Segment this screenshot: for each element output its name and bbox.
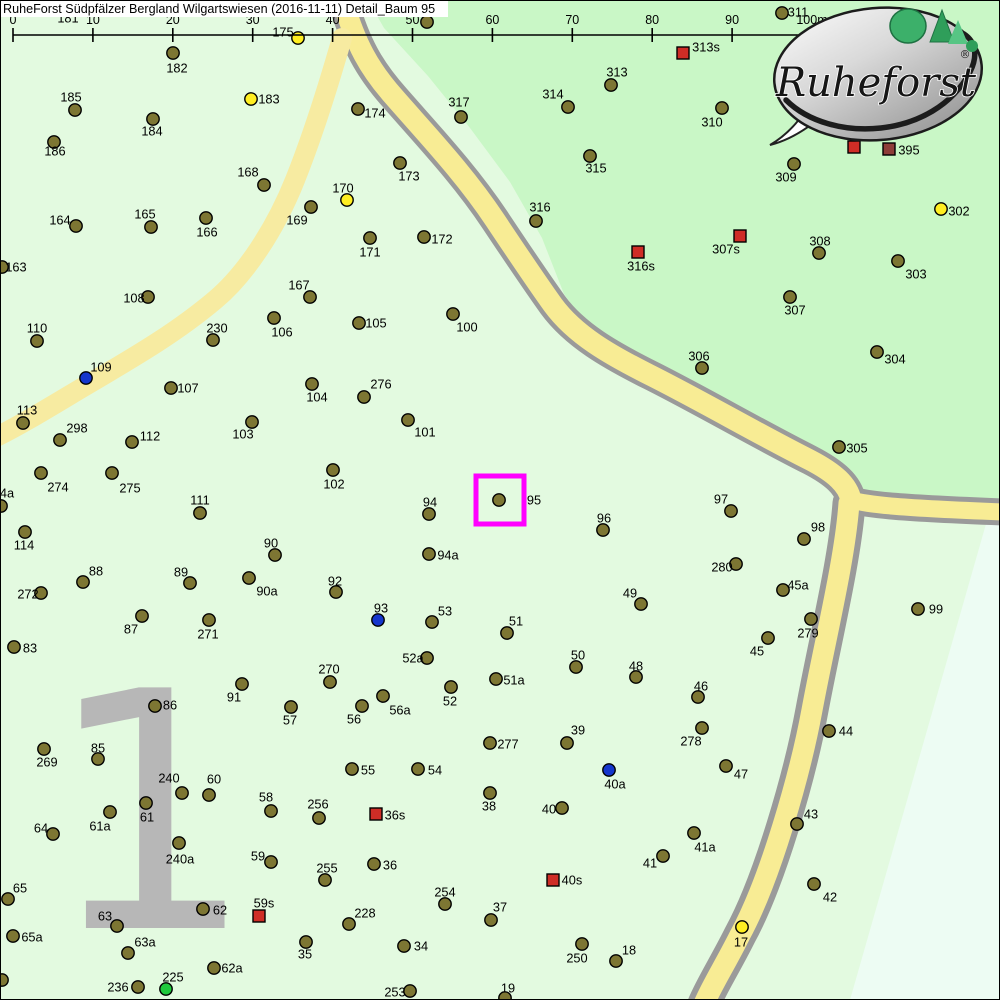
- tree-marker-36[interactable]: 36: [368, 858, 397, 873]
- tree-marker-40[interactable]: 40: [542, 802, 568, 817]
- marker-dot[interactable]: [324, 676, 336, 688]
- marker-dot[interactable]: [455, 111, 467, 123]
- marker-dot[interactable]: [610, 955, 622, 967]
- marker-dot[interactable]: [447, 308, 459, 320]
- marker-label: 61a: [89, 819, 111, 834]
- marker-dot[interactable]: [823, 725, 835, 737]
- tree-marker-83[interactable]: 83: [8, 641, 37, 656]
- marker-label: 86: [163, 698, 177, 713]
- tree-marker-65a[interactable]: 65a: [7, 930, 44, 945]
- map-canvas[interactable]: 1 181182185183184186168311318175313s3133…: [0, 0, 1000, 1000]
- marker-label: 276: [370, 377, 391, 392]
- marker-label: 63: [98, 909, 112, 924]
- tree-marker-86[interactable]: 86: [149, 698, 177, 713]
- marker-label: 108: [123, 291, 144, 306]
- marker-label: 165: [134, 207, 155, 222]
- marker-label: 56a: [389, 703, 411, 718]
- marker-label: 280: [711, 560, 732, 575]
- marker-label: 104: [306, 390, 327, 405]
- marker-dot[interactable]: [736, 921, 748, 933]
- marker-label: 51a: [503, 673, 525, 688]
- marker-label: 61: [140, 810, 154, 825]
- marker-label: 40s: [562, 873, 583, 888]
- marker-dot[interactable]: [784, 291, 796, 303]
- marker-label: 101: [414, 425, 435, 440]
- marker-label: 111: [190, 493, 209, 508]
- tree-marker-54[interactable]: 54: [412, 763, 442, 778]
- marker-dot[interactable]: [720, 760, 732, 772]
- marker-dot[interactable]: [657, 850, 669, 862]
- marker-label: 85: [91, 741, 105, 756]
- marker-dot[interactable]: [353, 317, 365, 329]
- marker-dot[interactable]: [688, 827, 700, 839]
- marker-dot[interactable]: [253, 910, 265, 922]
- marker-dot[interactable]: [38, 743, 50, 755]
- marker-dot[interactable]: [305, 201, 317, 213]
- marker-label: 90: [264, 536, 278, 551]
- marker-label: 175: [272, 25, 293, 40]
- marker-label: 313: [606, 65, 627, 80]
- marker-dot[interactable]: [167, 47, 179, 59]
- marker-label: 106: [271, 325, 292, 340]
- marker-dot[interactable]: [423, 548, 435, 560]
- tree-marker-107[interactable]: 107: [165, 381, 199, 396]
- marker-dot[interactable]: [106, 467, 118, 479]
- marker-label: 17: [734, 935, 748, 950]
- tree-marker-94[interactable]: 94: [423, 495, 437, 521]
- marker-label: 93: [374, 601, 388, 616]
- marker-dot[interactable]: [418, 231, 430, 243]
- marker-label: 89: [174, 565, 188, 580]
- marker-dot[interactable]: [203, 614, 215, 626]
- tree-marker-35[interactable]: 35: [298, 936, 312, 962]
- marker-dot[interactable]: [306, 378, 318, 390]
- marker-dot[interactable]: [805, 613, 817, 625]
- marker-dot[interactable]: [111, 920, 123, 932]
- marker-label: 317: [448, 95, 469, 110]
- marker-label: 34: [414, 939, 428, 954]
- marker-dot[interactable]: [319, 874, 331, 886]
- tree-marker-277[interactable]: 277: [484, 737, 519, 752]
- marker-label: 298: [66, 421, 87, 436]
- marker-label: 302: [948, 204, 969, 219]
- marker-label: 314: [542, 87, 563, 102]
- marker-dot[interactable]: [197, 903, 209, 915]
- marker-label: 278: [680, 734, 701, 749]
- marker-label: 38: [482, 799, 496, 814]
- marker-dot[interactable]: [122, 947, 134, 959]
- marker-label: 65a: [21, 930, 43, 945]
- marker-dot[interactable]: [356, 700, 368, 712]
- marker-label: 254: [434, 885, 455, 900]
- tree-marker-305[interactable]: 305: [833, 441, 868, 456]
- marker-dot[interactable]: [734, 230, 746, 242]
- tree-marker-17[interactable]: 17: [734, 921, 748, 950]
- marker-dot[interactable]: [576, 938, 588, 950]
- marker-dot[interactable]: [725, 505, 737, 517]
- marker-dot[interactable]: [341, 194, 353, 206]
- marker-label: 313s: [692, 40, 720, 55]
- marker-dot[interactable]: [7, 930, 19, 942]
- marker-label: 316: [529, 200, 550, 215]
- marker-label: 60: [207, 772, 221, 787]
- marker-dot[interactable]: [398, 940, 410, 952]
- grave-marker-unlabeled[interactable]: [848, 141, 860, 153]
- logo-tree-icon: [890, 9, 926, 43]
- page-title: RuheForst Südpfälzer Bergland Wilgartswi…: [3, 2, 435, 16]
- marker-label: 167: [288, 278, 309, 293]
- marker-label: 170: [332, 181, 353, 196]
- marker-label: 83: [23, 641, 37, 656]
- marker-label: 90a: [256, 584, 278, 599]
- marker-label: 45: [750, 644, 764, 659]
- marker-label: 40: [542, 802, 556, 817]
- marker-label: 56: [347, 712, 361, 727]
- marker-label: 185: [60, 90, 81, 105]
- marker-label: 256: [307, 797, 328, 812]
- tree-marker-92[interactable]: 92: [328, 574, 342, 599]
- marker-dot[interactable]: [35, 467, 47, 479]
- marker-label: 225: [162, 970, 183, 985]
- marker-label: 41: [643, 856, 657, 871]
- marker-dot[interactable]: [484, 787, 496, 799]
- marker-label: 279: [797, 626, 818, 641]
- marker-dot[interactable]: [377, 690, 389, 702]
- tree-marker-236[interactable]: 236: [107, 980, 144, 995]
- marker-label: 114: [14, 538, 34, 553]
- marker-dot[interactable]: [570, 661, 582, 673]
- marker-label: 308: [809, 234, 830, 249]
- marker-label: 250: [566, 951, 587, 966]
- marker-dot[interactable]: [208, 962, 220, 974]
- marker-dot[interactable]: [935, 203, 947, 215]
- marker-label: 43: [804, 807, 818, 822]
- map-viewer: 1 181182185183184186168311318175313s3133…: [0, 0, 1000, 1000]
- marker-label: 166: [196, 225, 217, 240]
- tree-marker-51a[interactable]: 51a: [490, 673, 526, 688]
- marker-dot[interactable]: [19, 526, 31, 538]
- marker-dot[interactable]: [346, 763, 358, 775]
- marker-label: 253: [384, 985, 405, 1000]
- marker-label: 35: [298, 947, 312, 962]
- marker-dot[interactable]: [605, 79, 617, 91]
- marker-label: 44: [839, 724, 853, 739]
- marker-dot[interactable]: [490, 673, 502, 685]
- tree-marker-57[interactable]: 57: [283, 701, 297, 728]
- marker-label: 395: [898, 143, 919, 158]
- marker-label: 112: [140, 429, 160, 444]
- marker-label: 102: [323, 477, 344, 492]
- marker-dot[interactable]: [421, 16, 433, 28]
- tree-marker-108[interactable]: 108: [123, 291, 154, 306]
- marker-dot[interactable]: [883, 143, 895, 155]
- tree-marker-272[interactable]: 272: [17, 587, 47, 602]
- marker-dot[interactable]: [696, 362, 708, 374]
- marker-dot[interactable]: [104, 806, 116, 818]
- tree-marker-94a[interactable]: 94a: [423, 548, 460, 563]
- marker-label: 45a: [787, 578, 809, 593]
- tree-marker-61[interactable]: 61: [140, 797, 154, 825]
- marker-dot[interactable]: [426, 616, 438, 628]
- marker-label: 50: [571, 648, 585, 663]
- marker-label: 110: [27, 321, 47, 336]
- tree-marker-44[interactable]: 44: [823, 724, 853, 739]
- marker-label: 87: [124, 622, 138, 637]
- marker-label: 255: [316, 861, 337, 876]
- marker-dot[interactable]: [268, 312, 280, 324]
- marker-label: 109: [90, 360, 111, 375]
- marker-label: 47: [734, 767, 748, 782]
- marker-dot[interactable]: [561, 737, 573, 749]
- marker-label: 240: [158, 771, 179, 786]
- marker-dot[interactable]: [327, 464, 339, 476]
- marker-label: 52a: [402, 651, 424, 666]
- marker-label: 59: [251, 849, 265, 864]
- marker-label: 91: [227, 690, 241, 705]
- marker-dot[interactable]: [176, 787, 188, 799]
- marker-dot[interactable]: [484, 737, 496, 749]
- marker-label: 94a: [437, 548, 459, 563]
- marker-label: 305: [846, 441, 867, 456]
- marker-dot[interactable]: [132, 981, 144, 993]
- tree-marker-163[interactable]: 163: [0, 260, 27, 275]
- marker-dot[interactable]: [501, 627, 513, 639]
- marker-label: 42: [823, 890, 837, 905]
- grave-marker-40s[interactable]: 40s: [547, 873, 582, 888]
- marker-dot[interactable]: [17, 417, 29, 429]
- marker-label: 172: [431, 232, 452, 247]
- marker-dot[interactable]: [8, 641, 20, 653]
- marker-label: 105: [365, 316, 386, 331]
- marker-label: 164: [49, 213, 70, 228]
- marker-label: 99: [929, 602, 943, 617]
- marker-dot[interactable]: [372, 614, 384, 626]
- marker-dot[interactable]: [423, 508, 435, 520]
- marker-dot[interactable]: [562, 101, 574, 113]
- marker-dot[interactable]: [696, 722, 708, 734]
- marker-dot[interactable]: [173, 837, 185, 849]
- marker-dot[interactable]: [149, 700, 161, 712]
- marker-dot[interactable]: [140, 797, 152, 809]
- marker-label: 107: [177, 381, 198, 396]
- tree-marker-52[interactable]: 52: [443, 681, 457, 709]
- marker-label: 303: [905, 267, 926, 282]
- scale-tick-label: 60: [485, 13, 499, 27]
- marker-dot[interactable]: [368, 858, 380, 870]
- marker-dot[interactable]: [445, 681, 457, 693]
- marker-dot[interactable]: [808, 878, 820, 890]
- marker-dot[interactable]: [912, 603, 924, 615]
- marker-label: 41a: [694, 840, 716, 855]
- marker-label: 48: [629, 659, 643, 674]
- marker-dot[interactable]: [47, 828, 59, 840]
- marker-dot[interactable]: [762, 632, 774, 644]
- marker-label: 19: [501, 981, 515, 996]
- marker-dot[interactable]: [236, 678, 248, 690]
- marker-dot[interactable]: [370, 808, 382, 820]
- marker-label: 92: [328, 574, 342, 589]
- tree-marker-38[interactable]: 38: [482, 787, 496, 814]
- marker-dot[interactable]: [358, 391, 370, 403]
- marker-dot[interactable]: [145, 221, 157, 233]
- marker-label: 315: [585, 161, 606, 176]
- marker-dot[interactable]: [70, 220, 82, 232]
- marker-label: 64: [34, 821, 48, 836]
- marker-dot[interactable]: [0, 974, 8, 986]
- marker-dot[interactable]: [547, 874, 559, 886]
- marker-dot[interactable]: [265, 805, 277, 817]
- marker-dot[interactable]: [833, 441, 845, 453]
- marker-dot[interactable]: [203, 789, 215, 801]
- marker-label: 228: [354, 906, 375, 921]
- marker-label: 113: [17, 403, 37, 418]
- marker-label: 169: [286, 213, 307, 228]
- tree-marker-unlabeled[interactable]: [0, 974, 8, 986]
- tree-marker-52a[interactable]: 52a: [402, 651, 433, 666]
- tree-marker-34[interactable]: 34: [398, 939, 428, 954]
- marker-dot[interactable]: [493, 494, 505, 506]
- marker-dot[interactable]: [243, 572, 255, 584]
- marker-label: 310: [701, 115, 722, 130]
- marker-dot[interactable]: [265, 856, 277, 868]
- marker-label: 103: [232, 427, 253, 442]
- marker-dot[interactable]: [245, 93, 257, 105]
- marker-dot[interactable]: [530, 215, 542, 227]
- grave-marker-36s[interactable]: 36s: [370, 808, 405, 823]
- marker-dot[interactable]: [69, 104, 81, 116]
- marker-label: 95: [527, 493, 541, 508]
- marker-label: 49: [623, 586, 637, 601]
- marker-dot[interactable]: [632, 246, 644, 258]
- tree-marker-183[interactable]: 183: [245, 92, 280, 107]
- marker-label: 274: [47, 480, 68, 495]
- marker-dot[interactable]: [304, 291, 316, 303]
- marker-dot[interactable]: [165, 382, 177, 394]
- marker-dot[interactable]: [313, 812, 325, 824]
- marker-dot[interactable]: [716, 102, 728, 114]
- marker-label: 58: [259, 790, 273, 805]
- marker-label: 94: [423, 495, 437, 510]
- marker-label: 53: [438, 604, 452, 619]
- marker-dot[interactable]: [352, 103, 364, 115]
- marker-label: 52: [443, 694, 457, 709]
- marker-label: 65: [13, 881, 27, 896]
- marker-label: 173: [398, 169, 419, 184]
- marker-label: 51: [509, 614, 523, 629]
- marker-dot[interactable]: [412, 763, 424, 775]
- marker-label: 36: [383, 858, 397, 873]
- tree-marker-48[interactable]: 48: [629, 659, 643, 684]
- scale-tick-label: 80: [645, 13, 659, 27]
- marker-label: 36s: [385, 808, 406, 823]
- marker-label: 307s: [712, 242, 740, 257]
- marker-label: 183: [258, 92, 279, 107]
- marker-dot[interactable]: [194, 507, 206, 519]
- marker-label: 54: [428, 763, 442, 778]
- marker-label: 272: [17, 587, 38, 602]
- marker-dot[interactable]: [285, 701, 297, 713]
- marker-label: 18: [622, 943, 636, 958]
- marker-label: 230: [206, 321, 227, 336]
- tree-marker-62a[interactable]: 62a: [208, 961, 244, 976]
- marker-label: 97: [714, 492, 728, 507]
- tree-marker-96[interactable]: 96: [597, 511, 611, 537]
- marker-label: 304: [884, 352, 905, 367]
- marker-label: 316s: [627, 259, 655, 274]
- marker-label: 40a: [604, 777, 626, 792]
- marker-label: 184: [141, 124, 162, 139]
- marker-dot[interactable]: [394, 157, 406, 169]
- tree-marker-55[interactable]: 55: [346, 763, 375, 778]
- marker-dot[interactable]: [136, 610, 148, 622]
- marker-dot[interactable]: [603, 764, 615, 776]
- marker-label: 271: [197, 627, 218, 642]
- marker-dot[interactable]: [871, 346, 883, 358]
- marker-label: 307: [784, 303, 805, 318]
- grave-marker-395[interactable]: 395: [883, 143, 920, 158]
- marker-dot[interactable]: [364, 232, 376, 244]
- marker-dot[interactable]: [126, 436, 138, 448]
- marker-dot[interactable]: [556, 802, 568, 814]
- marker-label: 171: [359, 245, 380, 260]
- marker-dot[interactable]: [258, 179, 270, 191]
- marker-label: 88: [89, 564, 103, 579]
- tree-marker-253[interactable]: 253: [384, 985, 416, 1000]
- logo-wordmark: Ruheforst: [775, 60, 977, 106]
- marker-dot[interactable]: [776, 7, 788, 19]
- marker-label: 59s: [254, 896, 275, 911]
- marker-dot[interactable]: [0, 500, 7, 512]
- marker-dot[interactable]: [269, 549, 281, 561]
- title-bar: RuheForst Südpfälzer Bergland Wilgartswi…: [0, 0, 448, 17]
- marker-dot[interactable]: [77, 576, 89, 588]
- marker-label: 174: [364, 106, 385, 121]
- marker-dot[interactable]: [813, 247, 825, 259]
- marker-dot[interactable]: [848, 141, 860, 153]
- marker-label: 46: [694, 679, 708, 694]
- marker-label: 275: [119, 481, 140, 496]
- marker-label: 240a: [166, 852, 195, 867]
- marker-dot[interactable]: [485, 914, 497, 926]
- marker-dot[interactable]: [791, 818, 803, 830]
- marker-dot[interactable]: [31, 335, 43, 347]
- marker-dot[interactable]: [677, 47, 689, 59]
- marker-label: 100: [456, 320, 477, 335]
- marker-label: 62: [213, 903, 227, 918]
- marker-label: 62a: [221, 961, 243, 976]
- marker-label: 4a: [0, 486, 15, 501]
- marker-label: 57: [283, 713, 297, 728]
- marker-dot[interactable]: [597, 524, 609, 536]
- tree-marker-85[interactable]: 85: [91, 741, 105, 766]
- tree-marker-105[interactable]: 105: [353, 316, 387, 331]
- tree-marker-62[interactable]: 62: [197, 903, 227, 918]
- marker-label: 277: [497, 737, 518, 752]
- marker-dot[interactable]: [439, 898, 451, 910]
- scale-tick-label: 70: [565, 13, 579, 27]
- marker-dot[interactable]: [788, 158, 800, 170]
- marker-dot[interactable]: [402, 414, 414, 426]
- marker-dot[interactable]: [207, 334, 219, 346]
- marker-label: 96: [597, 511, 611, 526]
- marker-dot[interactable]: [200, 212, 212, 224]
- marker-dot[interactable]: [798, 533, 810, 545]
- marker-label: 182: [166, 61, 187, 76]
- marker-dot[interactable]: [892, 255, 904, 267]
- marker-label: 270: [318, 662, 339, 677]
- marker-dot[interactable]: [54, 434, 66, 446]
- marker-dot[interactable]: [160, 983, 172, 995]
